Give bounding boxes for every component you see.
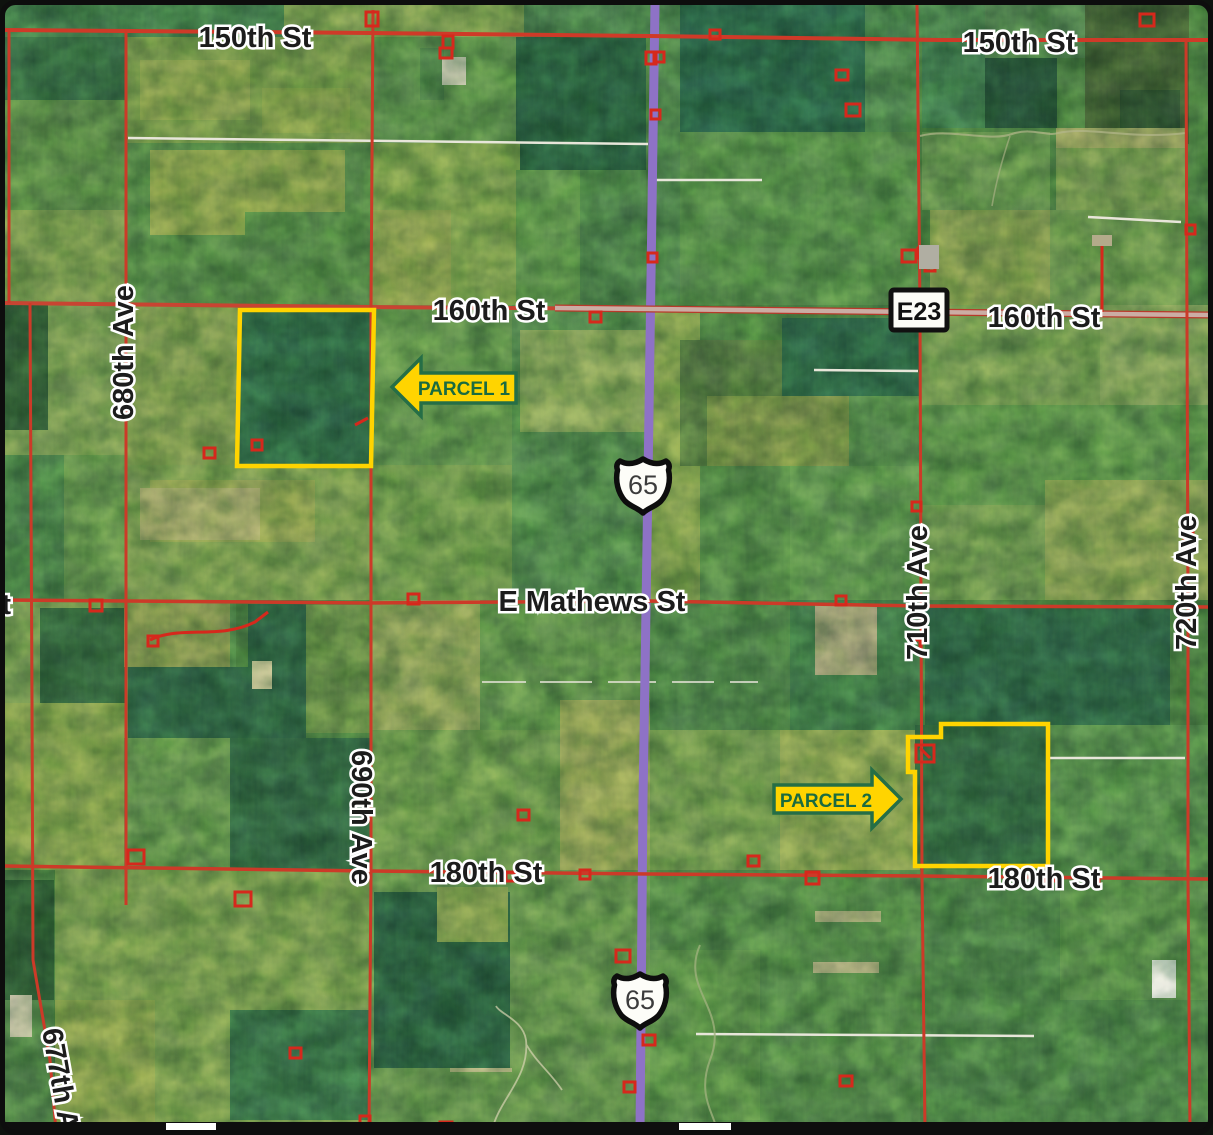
svg-text:E23: E23 xyxy=(897,298,941,326)
svg-text:180th St: 180th St xyxy=(988,863,1101,895)
svg-text:PARCEL 1: PARCEL 1 xyxy=(418,379,511,400)
svg-text:680th Ave: 680th Ave xyxy=(108,285,140,420)
svg-text:160th St: 160th St xyxy=(988,302,1101,334)
svg-text:160th St: 160th St xyxy=(433,295,546,327)
svg-text:E Mathews St: E Mathews St xyxy=(499,586,686,618)
svg-text:PARCEL 2: PARCEL 2 xyxy=(780,791,872,812)
svg-text:65: 65 xyxy=(628,470,658,500)
svg-text:65: 65 xyxy=(625,985,655,1015)
svg-text:690th Ave: 690th Ave xyxy=(345,750,377,885)
svg-text:180th St: 180th St xyxy=(430,857,543,889)
svg-text:150th St: 150th St xyxy=(199,22,312,54)
svg-text:150th St: 150th St xyxy=(963,27,1076,59)
svg-text:710th Ave: 710th Ave xyxy=(902,525,934,660)
svg-text:720th Ave: 720th Ave xyxy=(1171,515,1203,650)
